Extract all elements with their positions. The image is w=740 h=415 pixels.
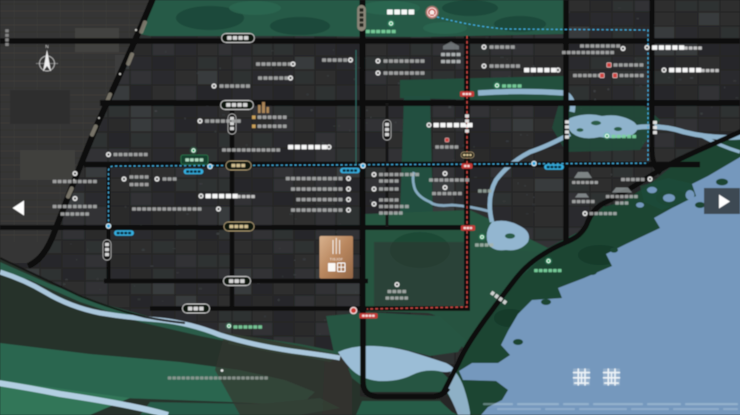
svg-text:TISJOF: TISJOF — [330, 258, 343, 262]
svg-text:N: N — [45, 44, 48, 49]
